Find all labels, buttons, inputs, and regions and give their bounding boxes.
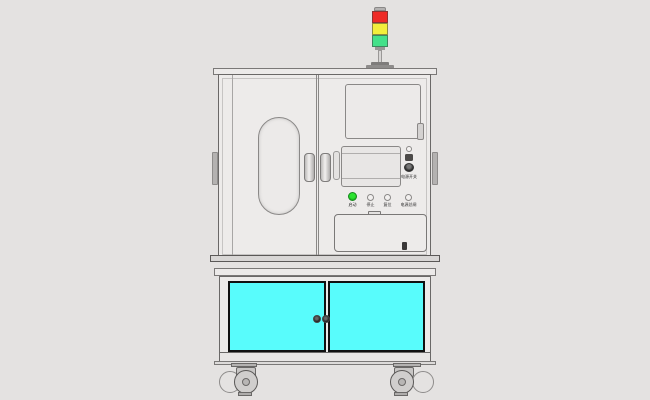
indicator-lamp xyxy=(406,146,412,152)
lower-door-left xyxy=(228,281,326,352)
power-switch-label: 电源开关 xyxy=(396,174,422,179)
start-button xyxy=(348,192,357,201)
caster-left-hub xyxy=(242,378,250,386)
left-stile-line xyxy=(232,75,233,258)
caster-right-brake xyxy=(394,392,408,396)
tower-light-green xyxy=(372,35,388,47)
upper-window xyxy=(345,84,421,139)
panel-bracket xyxy=(333,151,340,180)
drawer-panel xyxy=(334,214,427,252)
monitor-bezel-top xyxy=(342,153,400,154)
stop-button xyxy=(367,194,374,201)
side-handle-right xyxy=(432,152,438,185)
door-split-line xyxy=(316,75,319,258)
left-door-window xyxy=(258,117,300,215)
lower-door-knob-right xyxy=(322,315,330,323)
usb-port xyxy=(405,154,413,161)
left-door-handle xyxy=(304,153,315,182)
caster-right-hub xyxy=(398,378,406,386)
tower-light-yellow xyxy=(372,23,388,35)
upper-window-latch xyxy=(417,123,424,140)
lower-door-right xyxy=(328,281,425,352)
right-door-handle xyxy=(320,153,331,182)
caster-left-brake xyxy=(238,392,252,396)
drawer-keyhole xyxy=(402,242,407,250)
main-power-button xyxy=(405,194,412,201)
caster-right-swivel-ring xyxy=(412,371,434,393)
side-handle-left xyxy=(212,152,218,185)
main-power-button-label: 电源总闸 xyxy=(395,202,422,207)
monitor-screen xyxy=(341,146,401,187)
tower-light-red xyxy=(372,11,388,23)
monitor-bezel-bottom xyxy=(342,178,400,179)
start-button-label: 启动 xyxy=(343,202,362,207)
reset-button xyxy=(384,194,391,201)
cart-top-rail xyxy=(214,268,436,276)
power-switch-knob xyxy=(404,163,414,172)
table-edge xyxy=(210,255,440,262)
lower-door-knob-left xyxy=(313,315,321,323)
machine-drawing: 电源开关 启动 停止 复位 电源总闸 xyxy=(0,0,650,400)
